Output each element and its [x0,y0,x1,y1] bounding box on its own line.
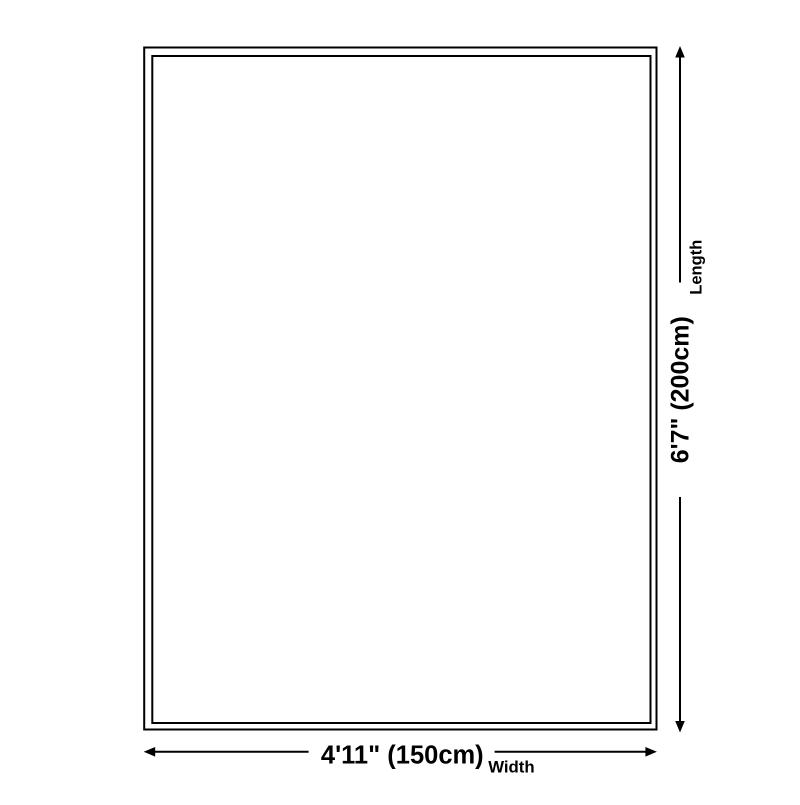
svg-text:6'7" (200cm): 6'7" (200cm) [667,316,695,463]
svg-text:Length: Length [688,240,706,295]
svg-text:4'11" (150cm): 4'11" (150cm) [321,741,484,769]
svg-text:Width: Width [488,758,534,777]
